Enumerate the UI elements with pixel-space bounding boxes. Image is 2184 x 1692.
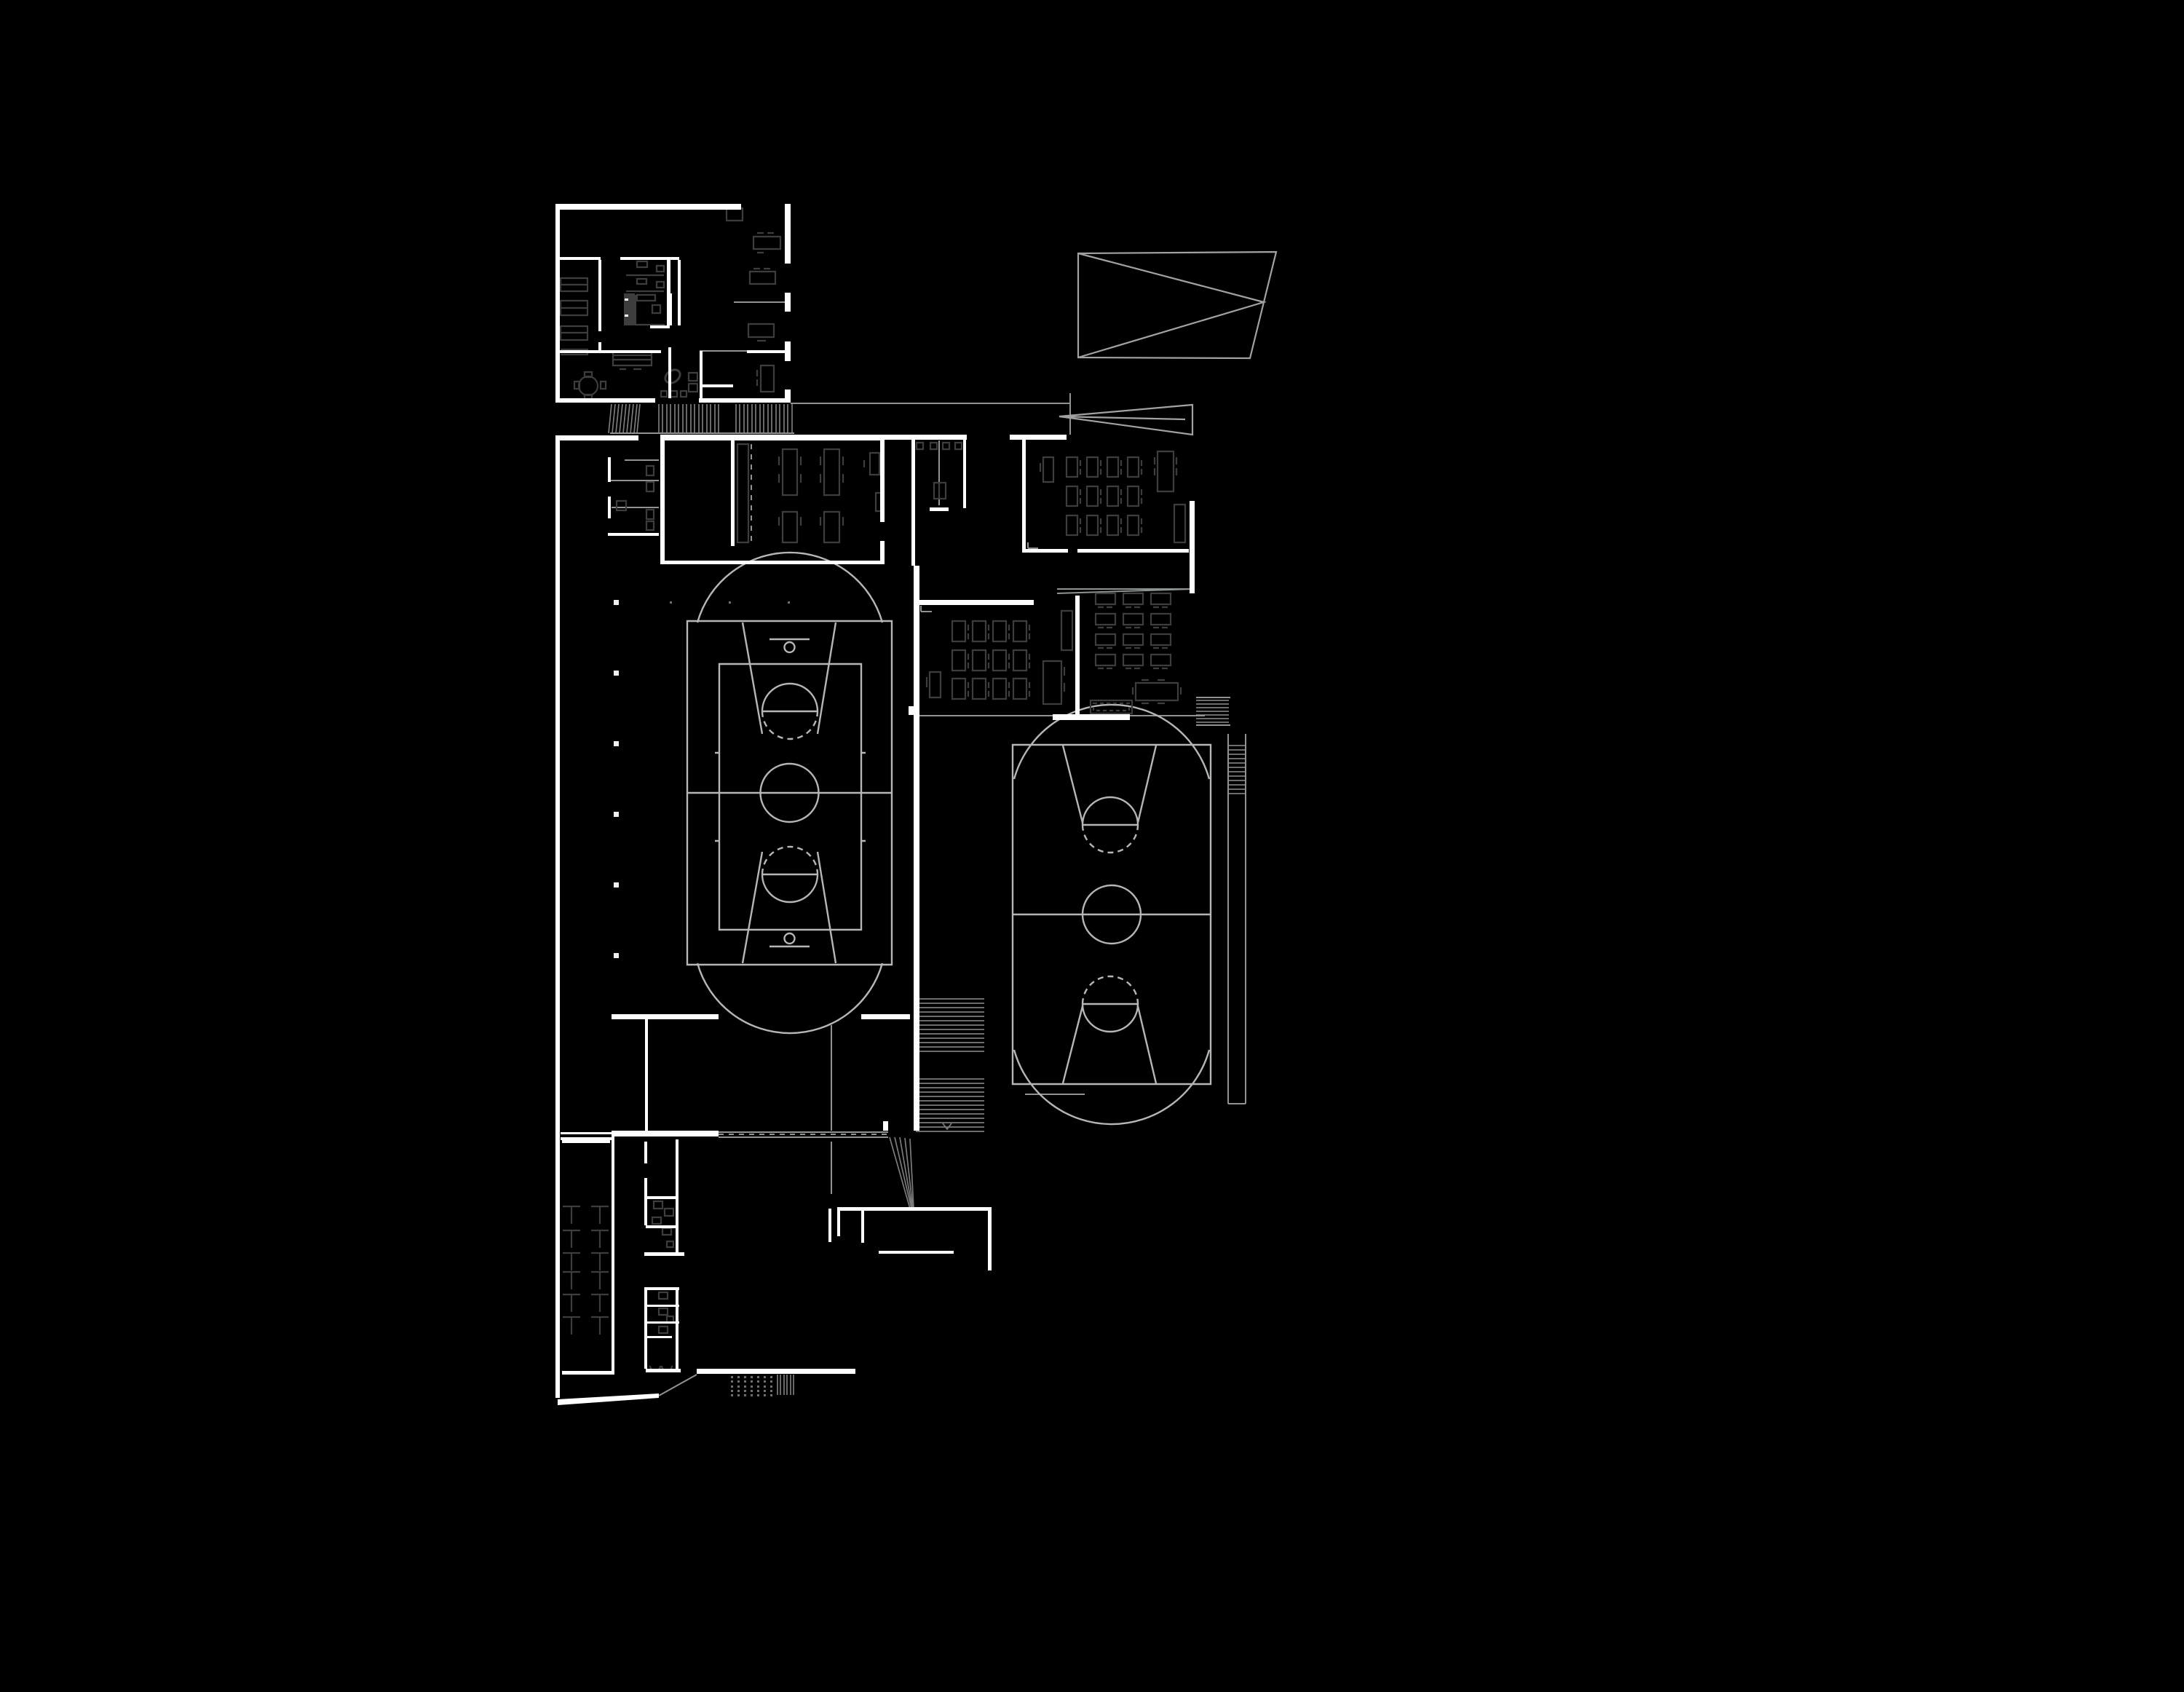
column-dot (614, 600, 619, 605)
column-dot (614, 882, 619, 887)
filled-cabinet (624, 293, 635, 325)
floor-plan-page (0, 0, 2184, 1692)
cabinet-tick (625, 315, 628, 317)
column-dot (614, 812, 619, 817)
column-dot (614, 953, 619, 958)
cabinet-tick (625, 299, 628, 301)
east-stair-hatch (1196, 700, 1229, 722)
cabinet-block (624, 293, 635, 325)
column-dot (614, 741, 619, 746)
floor-plan-canvas (0, 0, 2184, 1692)
column-dot (614, 671, 619, 676)
